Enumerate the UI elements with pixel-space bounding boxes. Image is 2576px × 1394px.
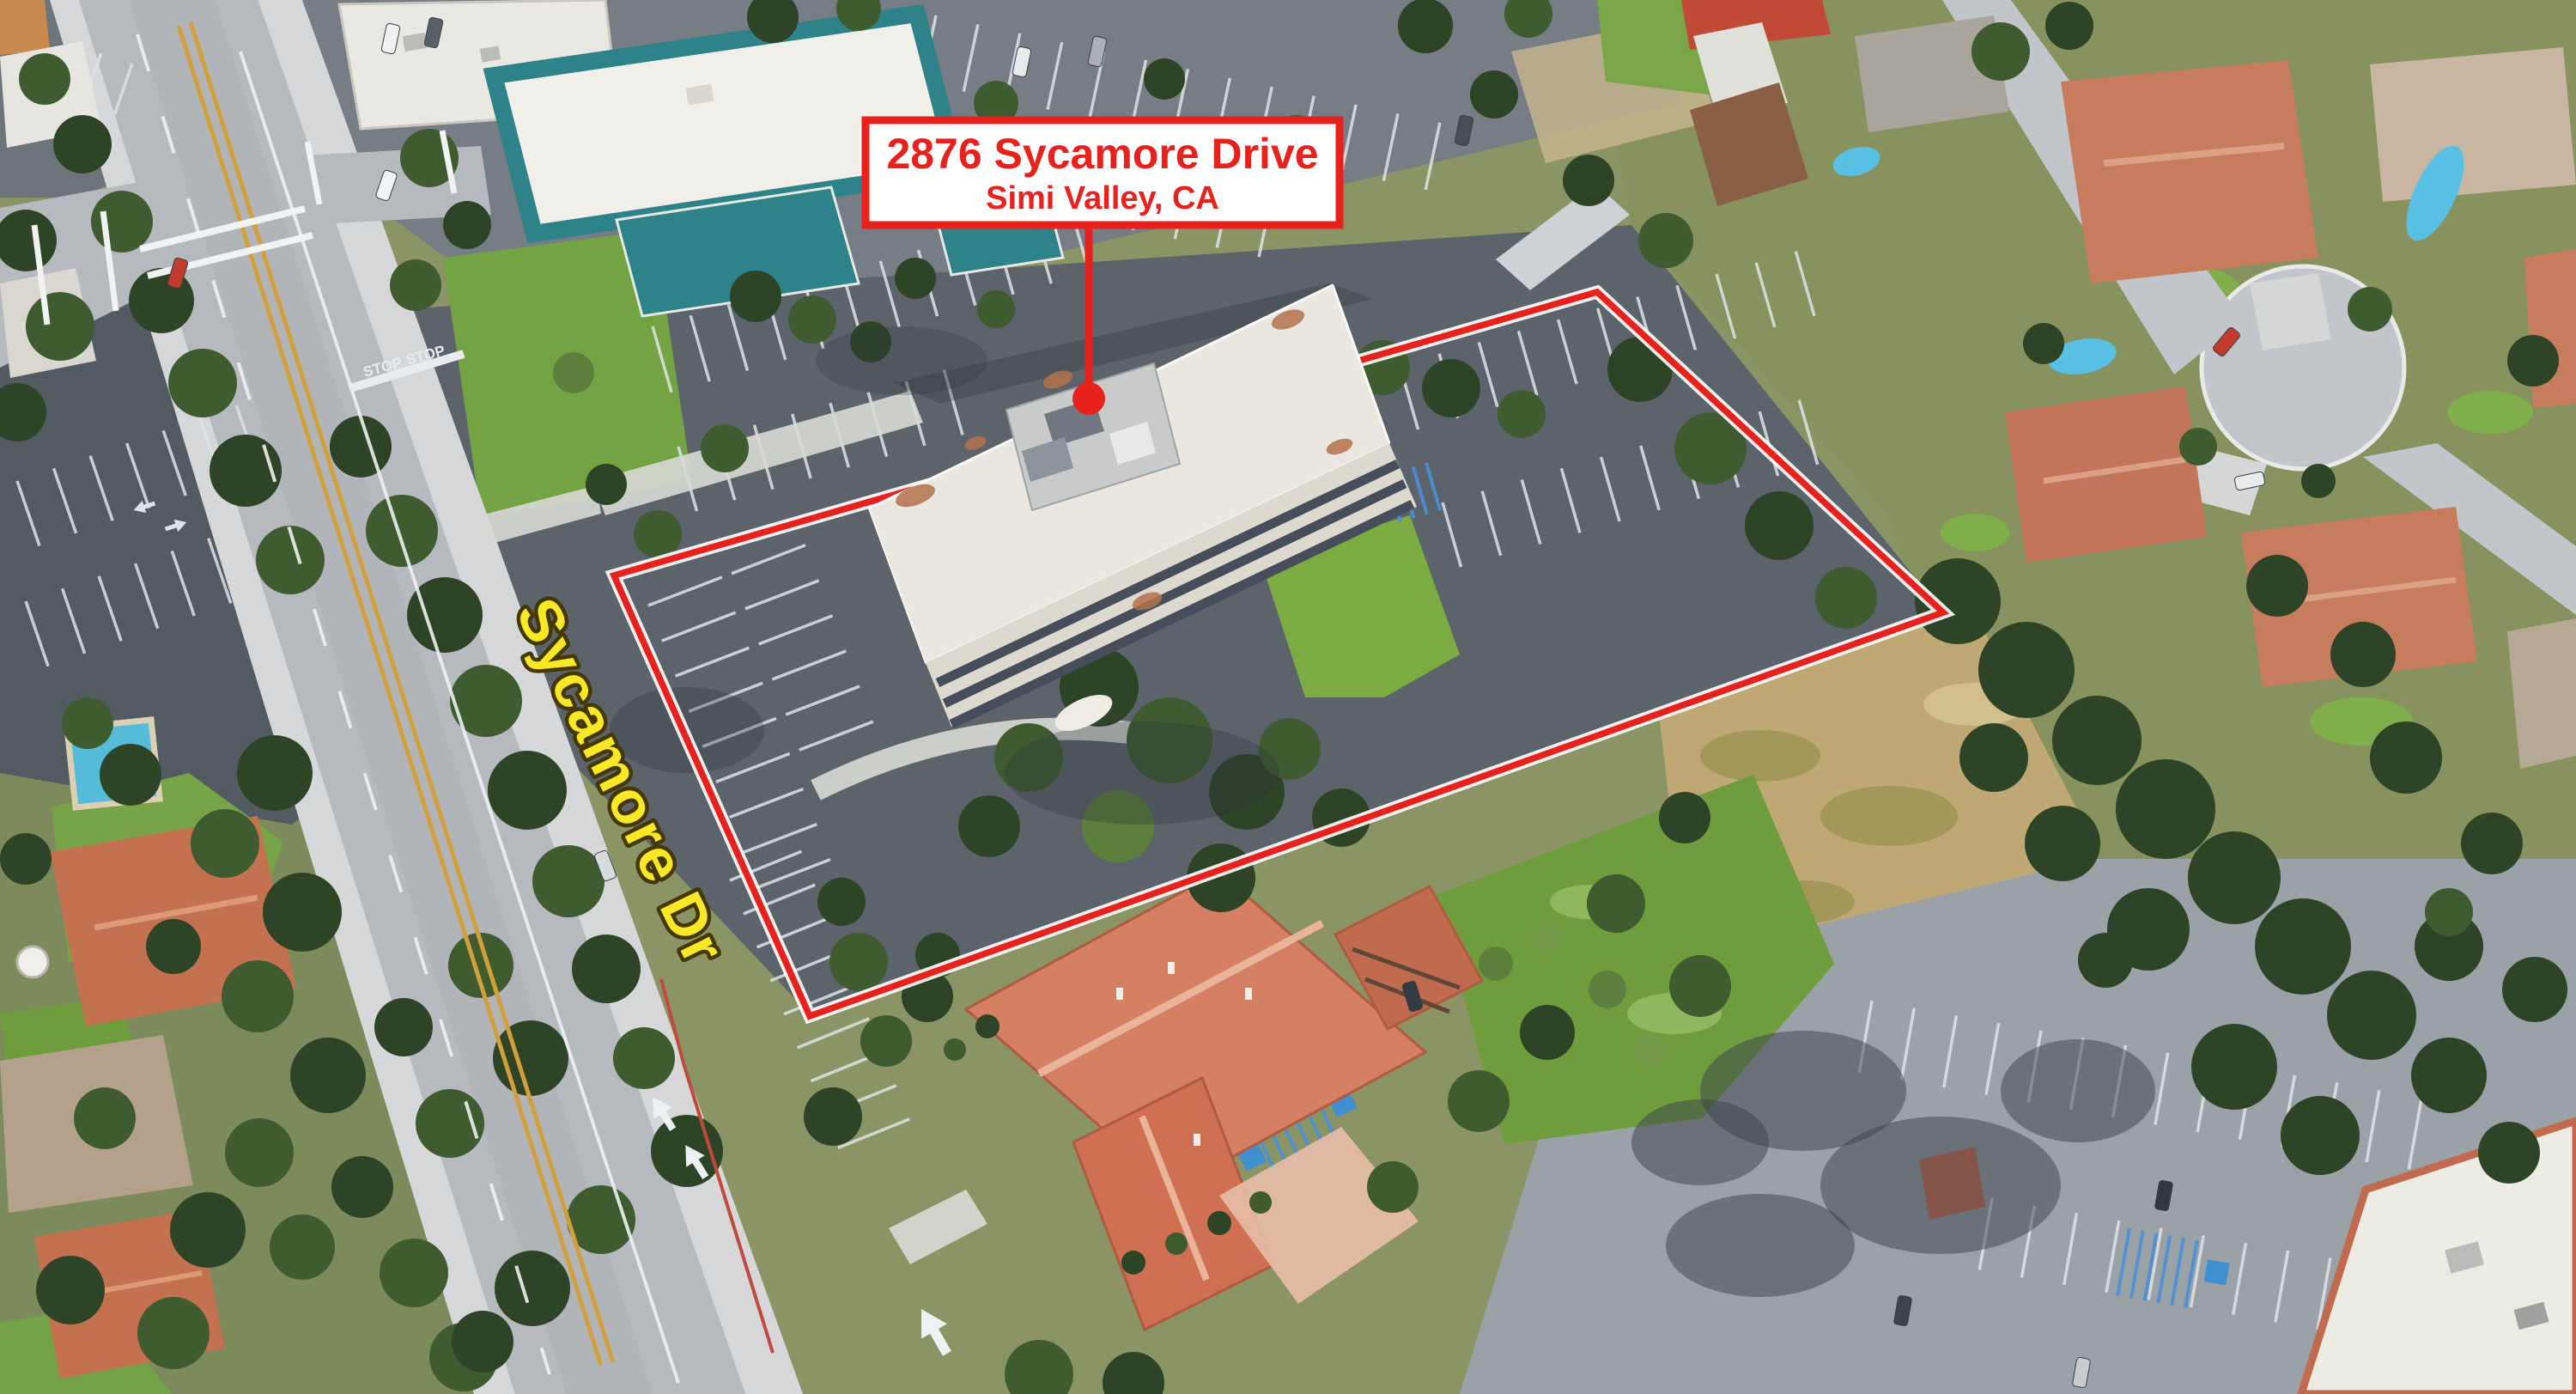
address-line2: Simi Valley, CA (986, 180, 1219, 216)
location-dot (1072, 382, 1105, 415)
address-line1: 2876 Sycamore Drive (886, 130, 1318, 178)
aerial-map: STOP STOP (0, 0, 2576, 1394)
aerial-map-canvas: STOP STOP (0, 0, 2576, 1394)
